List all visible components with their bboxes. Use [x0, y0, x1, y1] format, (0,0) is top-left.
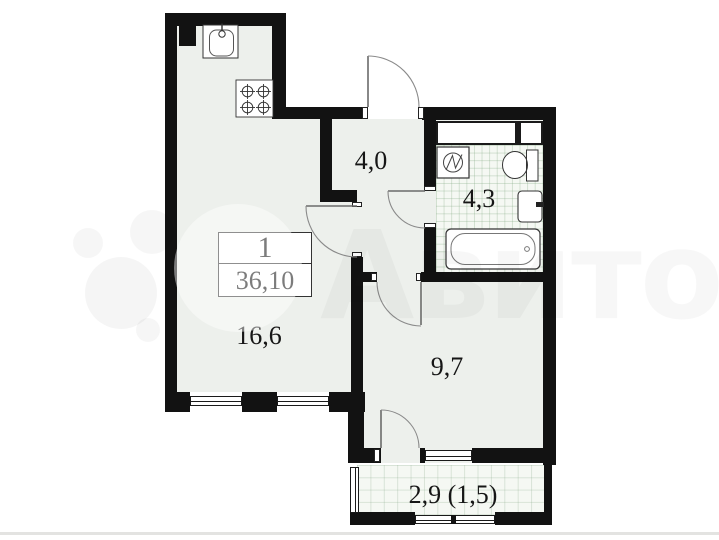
total-area: 36,10	[219, 264, 311, 297]
balcony-area-label: 2,9 (1,5)	[378, 480, 528, 510]
doorway-cap	[371, 273, 377, 281]
doorway-cap	[424, 223, 436, 228]
doorway-cap	[424, 186, 436, 191]
wall-segment	[350, 512, 415, 525]
entrance-door	[368, 56, 419, 107]
watermark-logo-circle	[73, 228, 103, 258]
wall-segment	[165, 13, 286, 26]
wall-segment	[320, 119, 332, 190]
doorway-cap	[418, 107, 424, 119]
wall-segment	[272, 13, 286, 119]
wall-segment	[179, 26, 196, 46]
unit-info-box: 1 36,10	[218, 232, 312, 297]
wall-segment	[421, 272, 543, 282]
wall-segment	[422, 107, 556, 120]
bathroom-area-label: 4,3	[448, 184, 510, 214]
living-room-window-1	[190, 396, 242, 406]
balcony-glazing-mullion	[451, 515, 456, 524]
wall-segment	[424, 228, 436, 274]
doorway-cap	[362, 107, 368, 119]
living-room-window-2	[277, 396, 329, 406]
vent-shaft-divider	[515, 121, 521, 145]
wall-segment	[472, 448, 556, 463]
doorway-cap	[416, 273, 421, 281]
wall-segment	[165, 392, 190, 412]
balcony-side-glazing	[350, 467, 359, 513]
room-area-label: 9,7	[412, 352, 482, 382]
wall-segment	[544, 463, 552, 525]
doorway-cap	[352, 252, 362, 257]
wall-segment	[165, 13, 177, 412]
living-room-area-label: 16,6	[214, 321, 304, 351]
vent-shaft-box	[436, 121, 543, 145]
wall-segment	[272, 107, 367, 119]
wall-segment	[424, 119, 436, 191]
doorway-cap	[374, 449, 380, 462]
doorway-cap	[352, 202, 362, 207]
watermark-logo-circle	[136, 318, 160, 342]
wall-segment	[242, 392, 277, 412]
wall-segment	[320, 190, 357, 202]
rooms-count: 1	[219, 233, 311, 264]
wall-segment	[543, 107, 556, 465]
hallway-area-label: 4,0	[340, 146, 402, 176]
page-bottom-rule	[0, 532, 719, 535]
watermark-logo-circle	[85, 257, 157, 329]
floorplan: 4,0 4,3 16,6 9,7 2,9 (1,5) 1 36,10 Авито	[0, 0, 719, 540]
room-window	[425, 450, 472, 461]
